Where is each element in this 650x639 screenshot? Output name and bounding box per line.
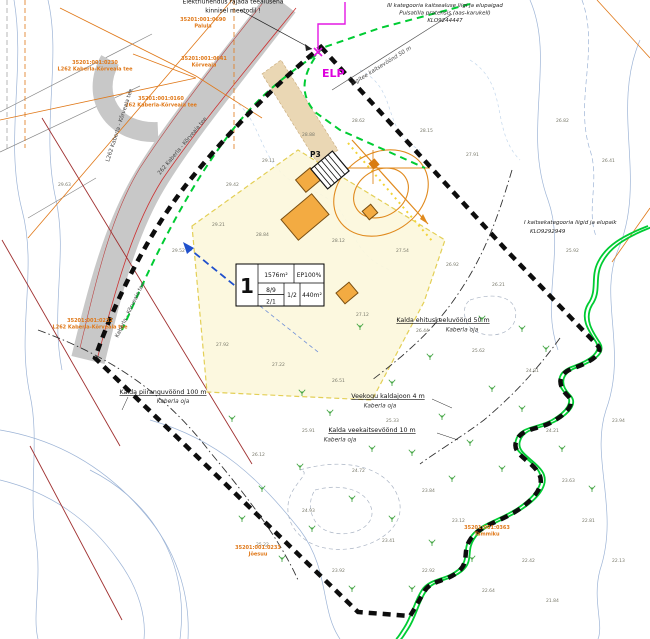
elevation-label: 26.41 (602, 158, 615, 164)
vegetation-icon (239, 516, 245, 522)
vegetation-icon (369, 446, 375, 452)
site-plan-page: 28.6228.1527.9128.8829.1129.4229.2128.84… (0, 0, 650, 639)
zone-piirang-title: Kalda piiranguvöönd 100 m (120, 389, 207, 396)
vegetation-icon (409, 450, 415, 456)
elevation-label: 25.33 (386, 418, 399, 424)
elevation-label: 26.51 (332, 378, 345, 384)
vegetation-icon (519, 326, 525, 332)
site-plan-map: 28.6228.1527.9128.8829.1129.4229.2128.84… (0, 0, 650, 639)
plot-r2d-value: 440m² (302, 292, 322, 299)
vegetation-icon (309, 526, 315, 532)
vegetation-icon (427, 354, 433, 360)
species-note-line2: Pulsatilla pratensis (aas-karukell) (399, 11, 490, 17)
elevation-label: 23.84 (422, 488, 435, 494)
elevation-label: 25.62 (472, 348, 485, 354)
elevation-label: 24.21 (546, 428, 559, 434)
plot-number: 1 (240, 274, 254, 298)
elevation-label: 23.12 (452, 518, 465, 524)
elevation-label: 29.52 (172, 248, 185, 254)
elevation-label: 22.13 (612, 558, 625, 564)
vegetation-icon (559, 446, 565, 452)
elevation-label: 22.64 (482, 588, 495, 594)
zone-ehituskeeld-title: Kalda ehituskeeluvöönd 50 m (396, 317, 489, 324)
habitat-note-line2: KLO9292949 (530, 229, 566, 235)
plot-1-table: 1 1576m² EP100% 8/9 2/1 1/2 440m² (236, 264, 324, 306)
vegetation-icon (409, 586, 415, 592)
elevation-label: 28.15 (420, 128, 433, 134)
elevation-label: 26.44 (416, 328, 429, 334)
elevation-label: 26.12 (252, 452, 265, 458)
cadastral-label: 35201:001:0690Palula (180, 17, 226, 30)
plot-area-value: 1576m² (264, 272, 288, 279)
line-veekaitse-10m (420, 338, 560, 464)
cadastral-label: 35201:001:0232L262 Kaberla-Kõrveaia tee (53, 318, 129, 331)
species-note-line1: III kategooria kaitsealuse liigi ja elup… (387, 3, 503, 9)
species-note-line3: KLO9244447 (427, 18, 463, 24)
vegetation-icon (389, 380, 395, 386)
zone-kaldajoon-sub: Kaberla oja (364, 404, 397, 410)
vegetation-icon (439, 414, 445, 420)
vegetation-icon (349, 586, 355, 592)
elevation-label: 28.12 (332, 238, 345, 244)
vegetation-icon (327, 410, 333, 416)
zone-kaldajoon-title: Veekogu kaldajoon 4 m (351, 393, 424, 400)
vegetation-icon (449, 476, 455, 482)
vegetation-icon (467, 440, 473, 446)
plot-ep-value: EP100% (297, 272, 322, 279)
habitat-note: I kaitsekategooria liigid ja elupaik KLO… (524, 220, 617, 235)
vegetation-icon (543, 346, 549, 352)
vegetation-icon (429, 540, 435, 546)
zone-veekaitse-title: Kalda veekaitsevöönd 10 m (328, 427, 415, 434)
elevation-label: 22.81 (582, 518, 595, 524)
cadastral-label: 35201:001:0230L262 Kaberla-Kõrveaia tee (58, 60, 134, 73)
elevation-label: 25.92 (566, 248, 579, 254)
vegetation-icon (229, 416, 235, 422)
elevation-label: 27.92 (216, 342, 229, 348)
elevation-label: 24.72 (352, 468, 365, 474)
zone-veekaitse-sub: Kaberla oja (324, 438, 357, 444)
elevation-label: 29.63 (58, 182, 71, 188)
elevation-label: 24.93 (302, 508, 315, 514)
vegetation-icon (489, 386, 495, 392)
elevation-label: 28.88 (302, 132, 315, 138)
construction-note-line2: kinnisel meetodil ! (205, 8, 261, 15)
plot-r2c-value: 1/2 (287, 292, 297, 299)
vegetation-icon (279, 556, 285, 562)
elevation-label: 28.84 (256, 232, 269, 238)
species-note: III kategooria kaitsealuse liigi ja elup… (387, 3, 503, 24)
elevation-label: 23.94 (612, 418, 625, 424)
cadastral-label: 35201:001:0233Jõesuu (235, 545, 281, 558)
elevation-label: 22.92 (422, 568, 435, 574)
elevation-label: 29.11 (262, 158, 275, 164)
elevation-label: 27.54 (396, 248, 409, 254)
habitat-note-line1: I kaitsekategooria liigid ja elupaik (524, 220, 617, 226)
elevation-label: 28.62 (352, 118, 365, 124)
elevation-label: 23.92 (332, 568, 345, 574)
elevation-label: 26.82 (556, 118, 569, 124)
construction-note-line1: Elektriühendus rajada teealusena (183, 0, 284, 6)
plot-r2b-value: 2/1 (266, 299, 276, 306)
elevation-label: 21.84 (546, 598, 559, 604)
vegetation-icon (589, 486, 595, 492)
plot-r2a-value: 8/9 (266, 287, 276, 294)
vegetation-icon (389, 516, 395, 522)
p3-label: P3 (310, 150, 321, 159)
elevation-label: 23.41 (382, 538, 395, 544)
elevation-label: 27.12 (356, 312, 369, 318)
elevation-label: 29.42 (226, 182, 239, 188)
elevation-label: 29.21 (212, 222, 225, 228)
vegetation-icon (499, 466, 505, 472)
elevation-label: 23.63 (562, 478, 575, 484)
vegetation-icon (519, 406, 525, 412)
road-zone-label: riigitee kaitsevöönd 50 m (350, 45, 413, 87)
elevation-label: 25.91 (302, 428, 315, 434)
zone-ehituskeeld-sub: Kaberla oja (446, 328, 479, 334)
vegetation-icon (349, 496, 355, 502)
elevation-label: 27.22 (272, 362, 285, 368)
elevation-label: 22.42 (522, 558, 535, 564)
elevation-label: 26.92 (446, 262, 459, 268)
elevation-label: 26.21 (492, 282, 505, 288)
elp-label: ELP (322, 67, 345, 80)
zone-piirang-sub: Kaberla oja (157, 399, 190, 405)
elevation-label: 27.91 (466, 152, 479, 158)
elevation-label: 24.81 (526, 368, 539, 374)
power-line (314, 2, 345, 56)
